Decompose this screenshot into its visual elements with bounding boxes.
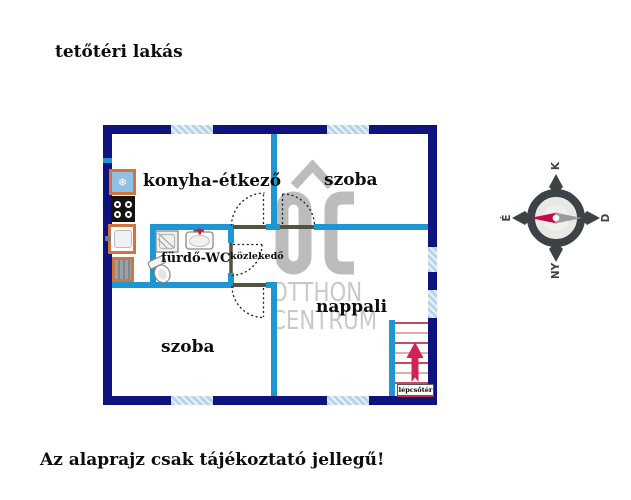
burner bbox=[125, 201, 132, 208]
outer-wall-top bbox=[103, 125, 437, 134]
window bbox=[171, 125, 213, 134]
disclaimer-text: Az alaprajz csak tájékoztató jellegű! bbox=[40, 450, 384, 470]
stair-step bbox=[395, 352, 428, 354]
snowflake-glyph: ❄ bbox=[118, 176, 127, 189]
burner bbox=[114, 201, 121, 208]
room-label-kitchen-dining: konyha-étkező bbox=[143, 171, 281, 191]
outer-wall-left bbox=[103, 125, 112, 405]
compass-label-south: D bbox=[600, 213, 612, 222]
window bbox=[428, 290, 437, 318]
wall-horizontal bbox=[314, 224, 428, 230]
room-label-hallway: közlekedő bbox=[230, 251, 284, 262]
room-label-living-room: nappali bbox=[316, 297, 387, 317]
window bbox=[327, 125, 369, 134]
room-label-bathroom: fürdő-WC bbox=[161, 251, 230, 266]
washer-lid bbox=[114, 230, 132, 248]
compass-label-west: NY bbox=[550, 262, 562, 278]
stair-step bbox=[395, 332, 428, 334]
room-label-room-top: szoba bbox=[324, 170, 377, 190]
window bbox=[171, 396, 213, 405]
fridge-icon: ❄ bbox=[109, 169, 136, 195]
compass-rose: K É D NY bbox=[496, 158, 616, 278]
compass-label-east: K bbox=[550, 161, 562, 170]
compass-hub bbox=[553, 215, 559, 221]
burner bbox=[125, 211, 132, 218]
stairwell-label: lépcsőtér bbox=[397, 384, 434, 397]
washer-knob bbox=[105, 236, 111, 241]
page-title: tetőtéri lakás bbox=[55, 42, 183, 62]
compass-label-north: É bbox=[500, 214, 513, 221]
radiator-icon bbox=[112, 257, 134, 282]
wall-stub bbox=[103, 158, 112, 163]
washing-machine-icon bbox=[108, 224, 136, 254]
wall-bathroom-left bbox=[150, 224, 156, 288]
floor-plan: OTTHON CENTRUM lépcsőtér bbox=[103, 125, 437, 405]
wall-horizontal bbox=[266, 224, 280, 230]
stair-step bbox=[395, 322, 428, 324]
window bbox=[428, 247, 437, 272]
stove-icon bbox=[111, 196, 135, 222]
burner bbox=[114, 211, 121, 218]
wall-bathroom-right bbox=[228, 224, 234, 243]
stair-step bbox=[395, 362, 428, 364]
wall-horizontal-lower bbox=[112, 282, 233, 288]
room-label-room-bottom: szoba bbox=[161, 337, 214, 357]
stair-step bbox=[395, 342, 428, 344]
stair-step bbox=[395, 372, 428, 374]
wall-horizontal bbox=[150, 224, 233, 230]
wall-room-living-divider bbox=[271, 282, 277, 396]
outer-wall-bottom bbox=[103, 396, 437, 405]
window bbox=[327, 396, 369, 405]
